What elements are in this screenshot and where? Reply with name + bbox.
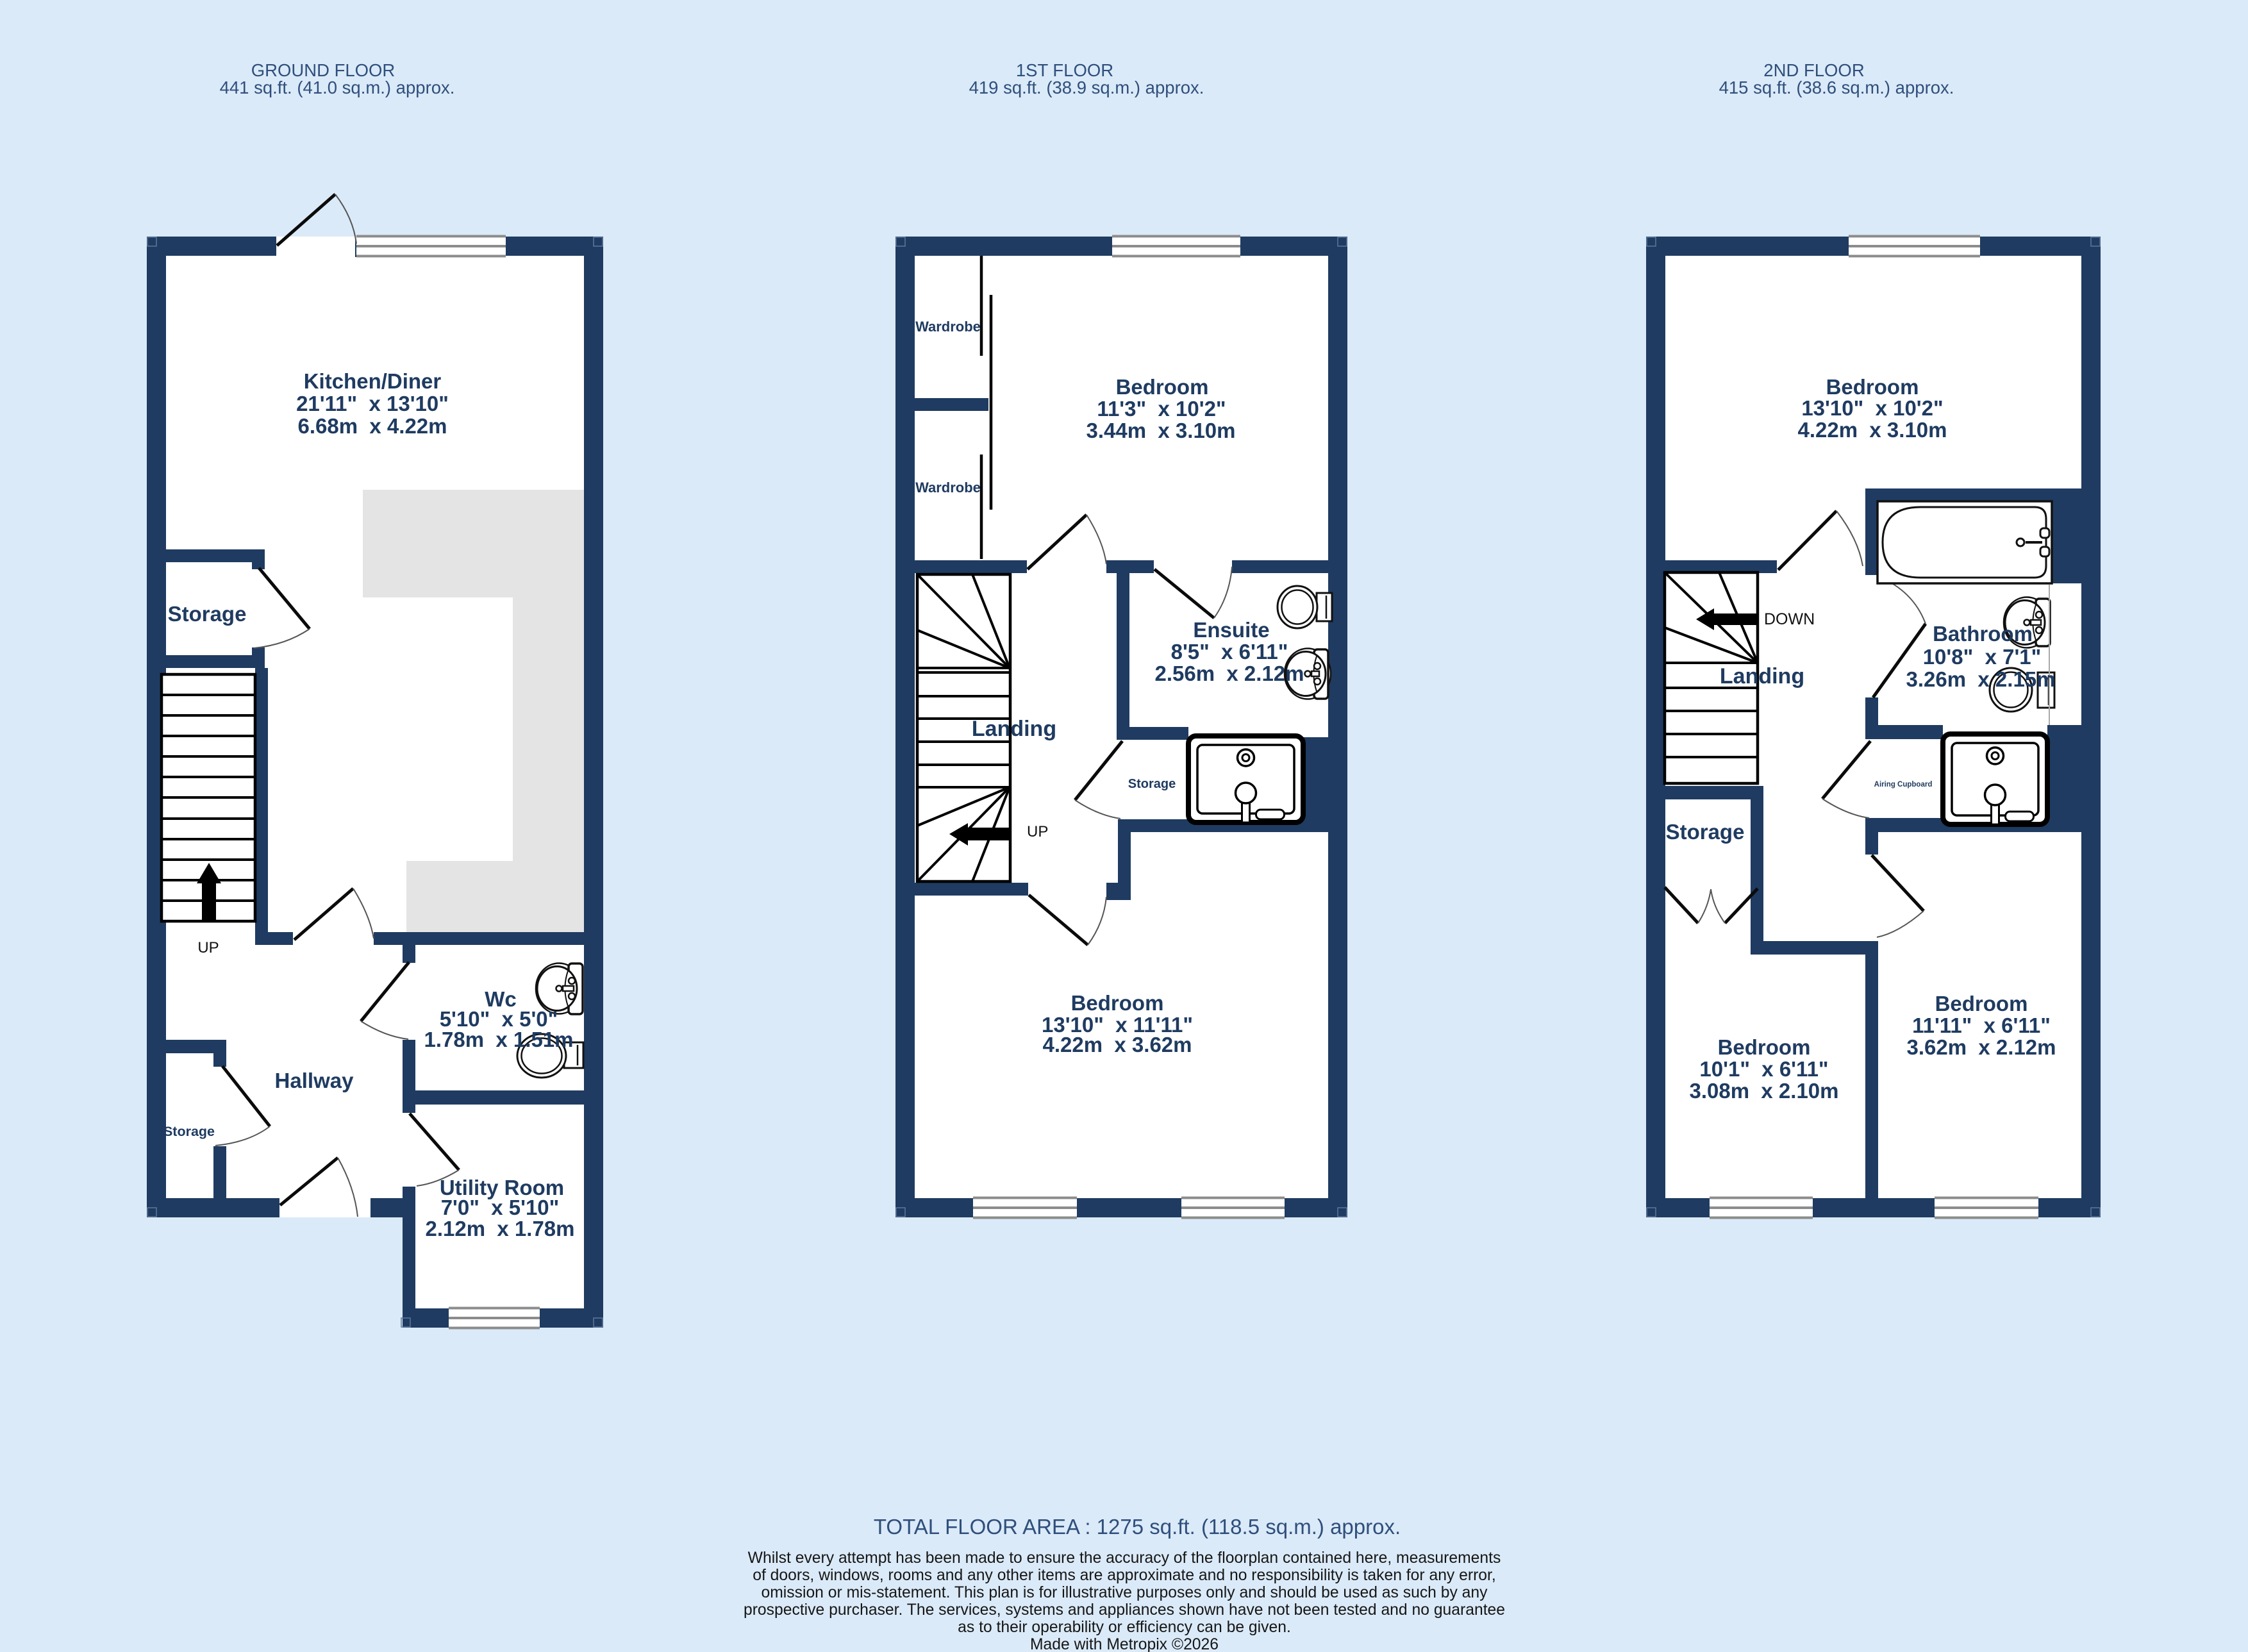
svg-text:Bedroom: Bedroom [1116,375,1209,399]
svg-text:2.56m x 2.12m: 2.56m x 2.12m [1155,662,1304,685]
svg-text:3.08m x 2.10m: 3.08m x 2.10m [1690,1079,1839,1103]
svg-text:Bedroom: Bedroom [1071,991,1164,1015]
svg-text:13'10" x 10'2": 13'10" x 10'2" [1801,396,1943,420]
svg-text:Landing: Landing [1720,664,1804,688]
svg-text:441 sq.ft. (41.0 sq.m.) approx: 441 sq.ft. (41.0 sq.m.) approx. [220,78,455,97]
svg-text:10'8" x 7'1": 10'8" x 7'1" [1923,645,2042,669]
svg-text:11'11" x 6'11": 11'11" x 6'11" [1912,1014,2051,1037]
svg-text:Made with Metropix ©2026: Made with Metropix ©2026 [1030,1636,1219,1652]
svg-text:4.22m x 3.10m: 4.22m x 3.10m [1798,418,1947,442]
svg-text:Airing Cupboard: Airing Cupboard [1874,781,1933,788]
svg-text:Kitchen/Diner: Kitchen/Diner [304,369,442,393]
svg-text:3.62m x 2.12m: 3.62m x 2.12m [1907,1035,2056,1059]
svg-text:8'5" x 6'11": 8'5" x 6'11" [1171,640,1288,663]
svg-text:Bedroom: Bedroom [1826,375,1919,399]
svg-text:prospective purchaser. The ser: prospective purchaser. The services, sys… [744,1601,1505,1619]
svg-text:21'11" x 13'10": 21'11" x 13'10" [296,392,449,415]
svg-text:omission or mis-statement. Thi: omission or mis-statement. This plan is … [762,1584,1488,1601]
svg-text:Bedroom: Bedroom [1718,1035,1811,1059]
svg-text:Wardrobe: Wardrobe [915,319,981,335]
svg-text:as to their operability or eff: as to their operability or efficiency ca… [958,1619,1291,1636]
svg-text:Storage: Storage [1128,777,1176,791]
svg-text:2.12m x 1.78m: 2.12m x 1.78m [426,1217,575,1240]
svg-text:10'1" x 6'11": 10'1" x 6'11" [1699,1057,1828,1081]
svg-text:3.44m x 3.10m: 3.44m x 3.10m [1087,419,1236,442]
svg-text:Storage: Storage [1666,820,1745,844]
svg-text:415 sq.ft. (38.6 sq.m.) approx: 415 sq.ft. (38.6 sq.m.) approx. [1719,78,1954,97]
svg-text:Wardrobe: Wardrobe [915,480,981,496]
svg-text:Storage: Storage [163,1124,215,1139]
svg-text:of doors, windows, rooms and a: of doors, windows, rooms and any other i… [753,1567,1496,1584]
svg-text:Landing: Landing [972,717,1056,741]
svg-text:1.78m x 1.51m: 1.78m x 1.51m [424,1028,574,1051]
svg-text:UP: UP [1027,823,1048,840]
svg-text:419 sq.ft. (38.9 sq.m.) approx: 419 sq.ft. (38.9 sq.m.) approx. [969,78,1204,97]
svg-text:4.22m x 3.62m: 4.22m x 3.62m [1043,1033,1192,1056]
svg-text:Storage: Storage [168,602,247,626]
svg-text:6.68m x 4.22m: 6.68m x 4.22m [298,414,447,438]
svg-text:7'0" x 5'10": 7'0" x 5'10" [441,1196,560,1219]
svg-text:DOWN: DOWN [1764,610,1815,628]
svg-text:UP: UP [197,939,219,956]
svg-text:Hallway: Hallway [275,1069,354,1092]
svg-text:3.26m x 2.15m: 3.26m x 2.15m [1906,667,2056,691]
svg-text:Bathroom: Bathroom [1933,622,2033,646]
svg-text:Ensuite: Ensuite [1193,618,1269,642]
svg-text:Bedroom: Bedroom [1935,992,2028,1015]
svg-text:TOTAL FLOOR AREA : 1275 sq.ft.: TOTAL FLOOR AREA : 1275 sq.ft. (118.5 sq… [874,1515,1401,1539]
svg-text:Whilst every attempt has been: Whilst every attempt has been made to en… [748,1549,1501,1567]
svg-text:11'3" x 10'2": 11'3" x 10'2" [1097,397,1226,421]
